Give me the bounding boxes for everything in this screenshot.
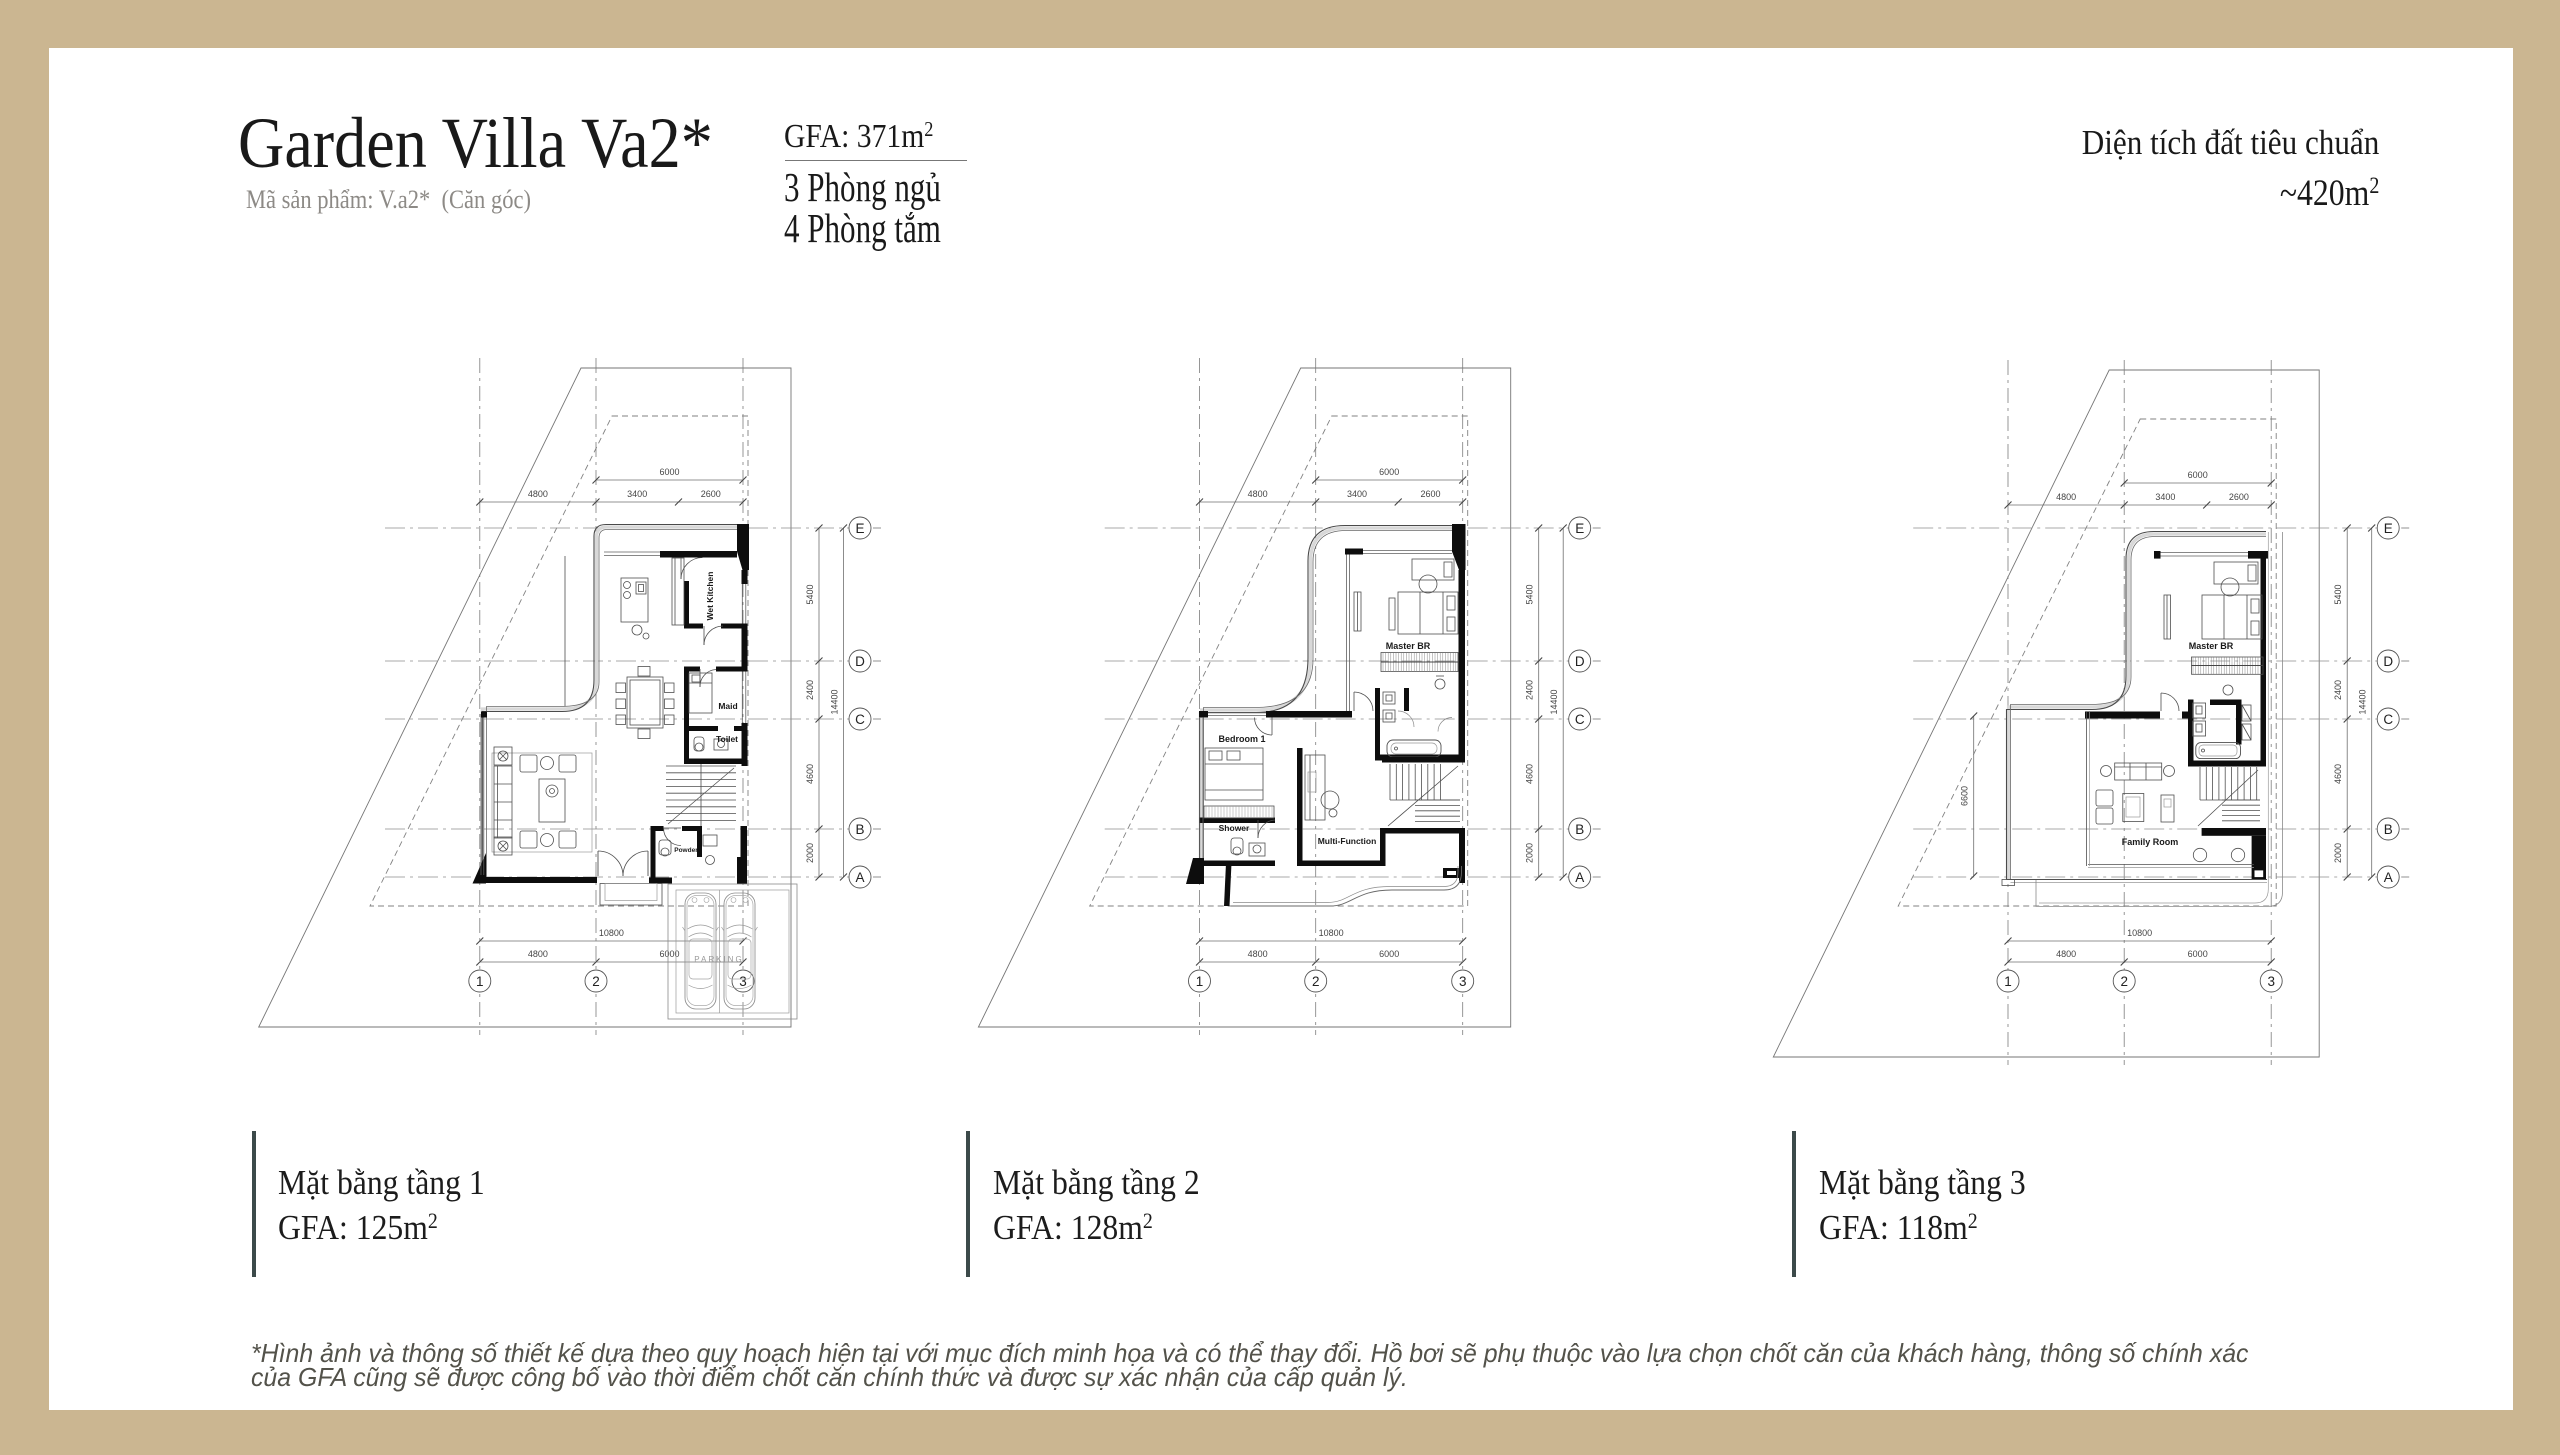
svg-text:Master BR: Master BR [2189, 641, 2234, 651]
svg-text:10800: 10800 [599, 928, 624, 938]
svg-text:B: B [855, 822, 864, 837]
svg-text:PARKING: PARKING [694, 955, 743, 964]
svg-text:2400: 2400 [2333, 680, 2343, 700]
svg-text:B: B [2384, 822, 2393, 837]
svg-text:2600: 2600 [2229, 492, 2249, 502]
svg-text:C: C [855, 712, 865, 727]
svg-text:C: C [1575, 712, 1585, 727]
svg-text:2400: 2400 [1525, 680, 1535, 700]
svg-text:4600: 4600 [1525, 764, 1535, 784]
svg-text:3: 3 [2267, 974, 2275, 989]
svg-text:4800: 4800 [1248, 489, 1268, 499]
svg-text:D: D [1575, 654, 1585, 669]
svg-text:6600: 6600 [1960, 786, 1970, 806]
svg-text:4800: 4800 [2056, 492, 2076, 502]
svg-text:Toilet: Toilet [716, 734, 738, 744]
svg-text:2000: 2000 [1525, 843, 1535, 863]
svg-text:2400: 2400 [805, 680, 815, 700]
svg-text:2000: 2000 [2333, 843, 2343, 863]
svg-text:Family Room: Family Room [2122, 837, 2179, 847]
svg-text:2: 2 [2120, 974, 2128, 989]
svg-text:6000: 6000 [659, 949, 679, 959]
svg-text:D: D [855, 654, 865, 669]
svg-text:2000: 2000 [805, 843, 815, 863]
svg-text:5400: 5400 [1525, 584, 1535, 604]
svg-text:4800: 4800 [528, 949, 548, 959]
svg-text:2600: 2600 [1420, 489, 1440, 499]
svg-text:10800: 10800 [2127, 928, 2152, 938]
svg-text:A: A [1575, 870, 1584, 885]
svg-text:Multi-Function: Multi-Function [1318, 836, 1377, 846]
svg-text:6000: 6000 [1379, 949, 1399, 959]
svg-text:10800: 10800 [1319, 928, 1344, 938]
svg-text:D: D [2383, 654, 2393, 669]
svg-text:4800: 4800 [1248, 949, 1268, 959]
svg-text:E: E [2384, 521, 2393, 536]
svg-text:A: A [2384, 870, 2393, 885]
svg-text:3: 3 [1459, 974, 1467, 989]
svg-text:Maid: Maid [718, 701, 737, 711]
svg-text:6000: 6000 [2188, 470, 2208, 480]
svg-text:Bedroom 1: Bedroom 1 [1218, 734, 1265, 744]
svg-text:6000: 6000 [659, 467, 679, 477]
svg-text:4600: 4600 [805, 764, 815, 784]
svg-text:5400: 5400 [805, 584, 815, 604]
svg-text:E: E [855, 521, 864, 536]
svg-text:Master BR: Master BR [1386, 641, 1431, 651]
svg-text:2: 2 [1312, 974, 1320, 989]
svg-text:14400: 14400 [830, 689, 840, 714]
svg-text:Powder: Powder [674, 847, 698, 854]
svg-text:3400: 3400 [2155, 492, 2175, 502]
svg-text:Wet Kitchen: Wet Kitchen [705, 572, 715, 621]
svg-text:4800: 4800 [528, 489, 548, 499]
svg-text:4800: 4800 [2056, 949, 2076, 959]
svg-text:4600: 4600 [2333, 764, 2343, 784]
svg-text:3: 3 [739, 974, 747, 989]
svg-text:1: 1 [1196, 974, 1204, 989]
svg-text:2600: 2600 [701, 489, 721, 499]
svg-text:6000: 6000 [2188, 949, 2208, 959]
svg-text:6000: 6000 [1379, 467, 1399, 477]
svg-text:1: 1 [476, 974, 484, 989]
svg-text:C: C [2383, 712, 2393, 727]
svg-text:3400: 3400 [627, 489, 647, 499]
svg-text:2: 2 [592, 974, 600, 989]
svg-text:Shower: Shower [1219, 823, 1250, 833]
svg-text:B: B [1575, 822, 1584, 837]
svg-text:E: E [1575, 521, 1584, 536]
svg-text:3400: 3400 [1347, 489, 1367, 499]
svg-text:A: A [855, 870, 864, 885]
svg-text:1: 1 [2004, 974, 2012, 989]
svg-text:14400: 14400 [2358, 689, 2368, 714]
svg-text:14400: 14400 [1549, 689, 1559, 714]
svg-text:5400: 5400 [2333, 584, 2343, 604]
